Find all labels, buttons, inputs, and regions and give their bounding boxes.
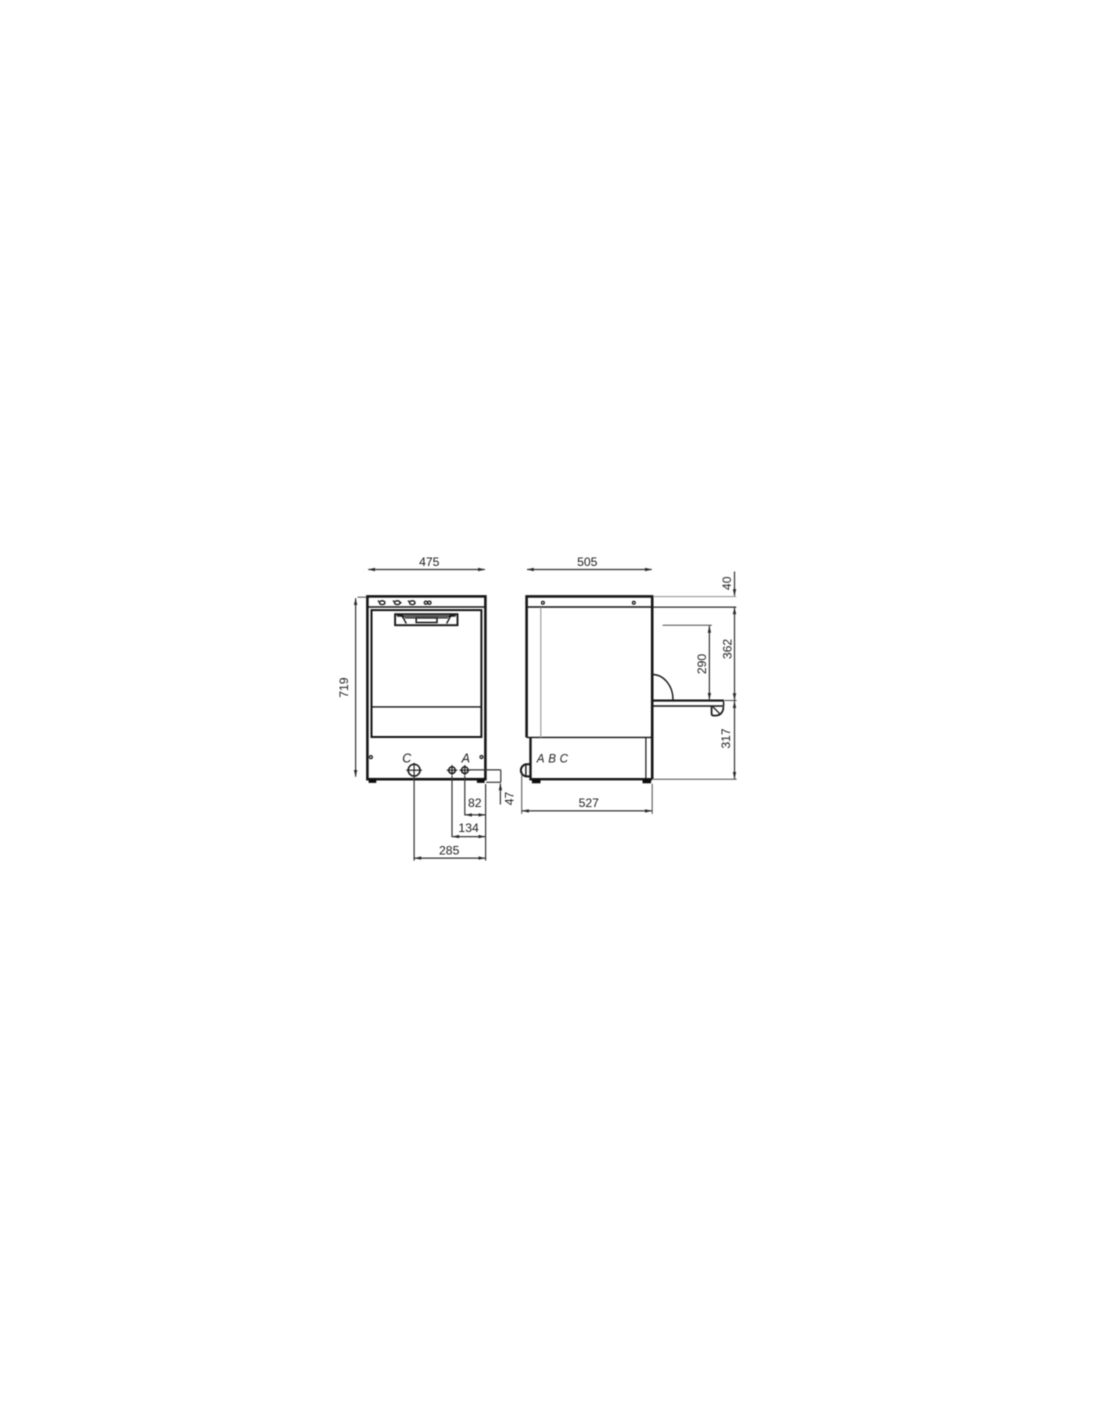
- svg-text:82: 82: [468, 796, 482, 810]
- svg-text:285: 285: [439, 843, 460, 857]
- svg-text:47: 47: [503, 792, 517, 806]
- svg-text:505: 505: [577, 555, 598, 569]
- svg-text:ABC: ABC: [536, 752, 572, 765]
- svg-text:134: 134: [458, 821, 479, 835]
- svg-text:A: A: [461, 751, 470, 765]
- svg-text:475: 475: [419, 555, 440, 569]
- svg-text:719: 719: [337, 677, 351, 698]
- svg-text:362: 362: [720, 639, 734, 660]
- svg-text:290: 290: [695, 654, 709, 675]
- svg-text:527: 527: [579, 796, 600, 810]
- svg-text:317: 317: [719, 728, 733, 749]
- svg-text:C: C: [402, 752, 412, 766]
- svg-text:40: 40: [720, 576, 734, 590]
